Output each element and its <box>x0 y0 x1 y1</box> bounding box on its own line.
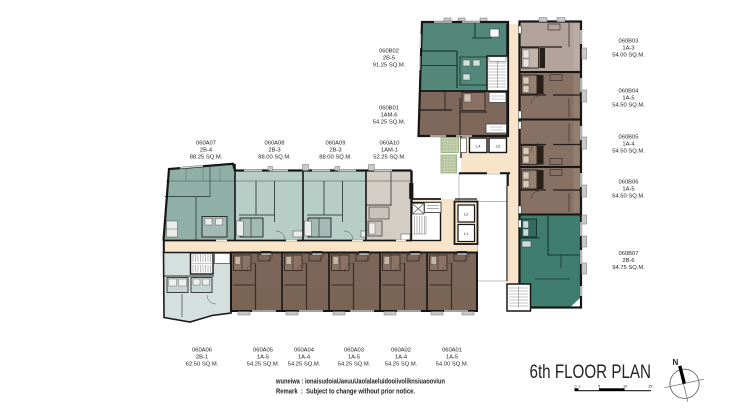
svg-text:1A-5: 1A-5 <box>348 355 360 361</box>
svg-text:060A09: 060A09 <box>326 140 346 146</box>
svg-text:2B-3: 2B-3 <box>329 147 341 153</box>
svg-text:1A-4: 1A-4 <box>622 141 635 147</box>
svg-text:91.25 SQ.M.: 91.25 SQ.M. <box>373 63 406 69</box>
svg-text:060B01: 060B01 <box>379 106 399 112</box>
svg-text:5: 5 <box>598 384 600 388</box>
svg-text:2B-5: 2B-5 <box>383 56 395 62</box>
svg-text:L1: L1 <box>464 231 469 236</box>
svg-text:0: 0 <box>575 384 577 388</box>
svg-text:54.25 SQ.M.: 54.25 SQ.M. <box>373 120 406 126</box>
svg-text:060A02: 060A02 <box>391 348 411 354</box>
svg-text:060B07: 060B07 <box>619 251 639 257</box>
svg-text:54.50 SQ.M.: 54.50 SQ.M. <box>612 103 645 109</box>
svg-text:54.25 SQ.M.: 54.25 SQ.M. <box>247 362 280 368</box>
svg-text:1A-4: 1A-4 <box>395 355 408 361</box>
svg-text:54.00 SQ.M.: 54.00 SQ.M. <box>612 53 645 59</box>
svg-text:88.00 SQ.M.: 88.00 SQ.M. <box>258 154 291 160</box>
svg-text:54.50 SQ.M.: 54.50 SQ.M. <box>612 194 645 200</box>
svg-text:2B-1: 2B-1 <box>196 355 208 361</box>
svg-text:060A05: 060A05 <box>253 348 273 354</box>
svg-text:52.25 SQ.M.: 52.25 SQ.M. <box>373 154 406 160</box>
svg-text:060B02: 060B02 <box>379 49 399 55</box>
svg-text:1A-5: 1A-5 <box>446 355 458 361</box>
svg-text:6th FLOOR PLAN: 6th FLOOR PLAN <box>530 362 652 383</box>
svg-text:88.25 SQ.M.: 88.25 SQ.M. <box>190 154 223 160</box>
svg-text:2B-3: 2B-3 <box>268 147 280 153</box>
svg-text:2B-4: 2B-4 <box>200 147 213 153</box>
svg-text:54.25 SQ.M.: 54.25 SQ.M. <box>385 362 418 368</box>
svg-text:060A03: 060A03 <box>344 348 364 354</box>
svg-text:54.50 SQ.M.: 54.50 SQ.M. <box>612 148 645 154</box>
svg-text:060B03: 060B03 <box>619 39 639 45</box>
svg-text:62.50 SQ.M.: 62.50 SQ.M. <box>186 362 219 368</box>
svg-text:1: 1 <box>579 384 581 388</box>
svg-text:54.00 SQ.M.: 54.00 SQ.M. <box>436 362 469 368</box>
svg-text:060A10: 060A10 <box>380 140 400 146</box>
svg-text:060A04: 060A04 <box>294 348 315 354</box>
svg-text:060B06: 060B06 <box>619 180 639 186</box>
svg-text:060A06: 060A06 <box>192 348 212 354</box>
svg-text:wuneiwa : ionaisudoiaUaeuuUaol: wuneiwa : ionaisudoiaUaeuuUaolalaeluidoo… <box>275 377 445 386</box>
svg-text:1A-5: 1A-5 <box>257 355 269 361</box>
svg-text:94.75 SQ.M.: 94.75 SQ.M. <box>612 265 645 271</box>
svg-text:1AM-6: 1AM-6 <box>380 113 397 119</box>
svg-text:060A08: 060A08 <box>265 140 285 146</box>
svg-text:060A01: 060A01 <box>442 348 462 354</box>
svg-text:1AM-1: 1AM-1 <box>381 147 398 153</box>
svg-text:060B05: 060B05 <box>619 134 639 140</box>
svg-text:54.25 SQ.M.: 54.25 SQ.M. <box>288 362 321 368</box>
svg-text:1A-3: 1A-3 <box>622 46 634 52</box>
svg-text:060B04: 060B04 <box>619 89 640 95</box>
svg-text:L4: L4 <box>476 143 481 148</box>
svg-text:L3: L3 <box>496 143 501 148</box>
svg-text:1A-5: 1A-5 <box>622 96 634 102</box>
svg-text:2B-6: 2B-6 <box>622 258 634 264</box>
svg-text:10: 10 <box>623 384 627 388</box>
svg-text:1A-5: 1A-5 <box>622 187 634 193</box>
svg-text:060A07: 060A07 <box>196 140 216 146</box>
svg-text:Remark : Subject to change w: Remark : Subject to change without prior… <box>276 389 415 396</box>
svg-text:54.25 SQ.M.: 54.25 SQ.M. <box>338 362 371 368</box>
svg-text:1A-4: 1A-4 <box>298 355 311 361</box>
svg-text:L2: L2 <box>464 212 469 217</box>
svg-text:88.00 SQ.M.: 88.00 SQ.M. <box>319 154 352 160</box>
svg-text:15: 15 <box>648 384 652 388</box>
svg-text:N: N <box>673 358 679 367</box>
